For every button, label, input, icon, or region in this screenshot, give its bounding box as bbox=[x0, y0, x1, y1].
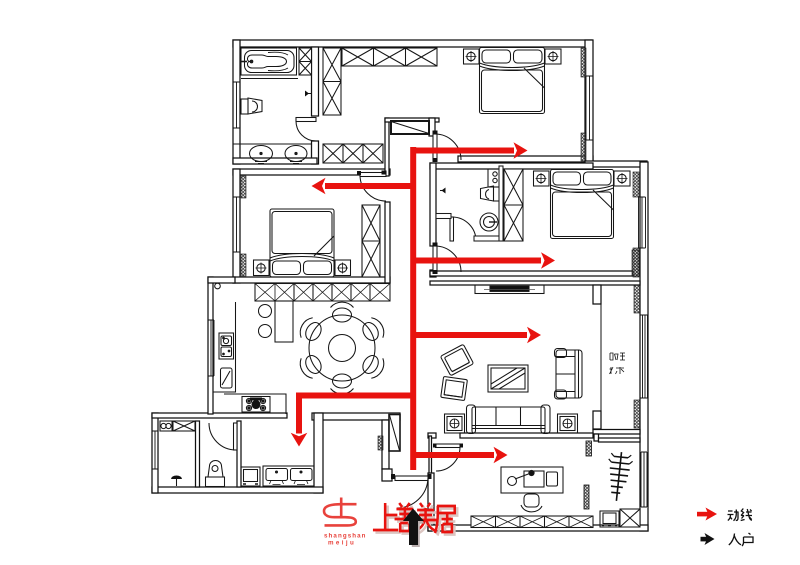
svg-text:shangshan: shangshan bbox=[324, 533, 367, 540]
svg-text:meiju: meiju bbox=[328, 540, 356, 547]
